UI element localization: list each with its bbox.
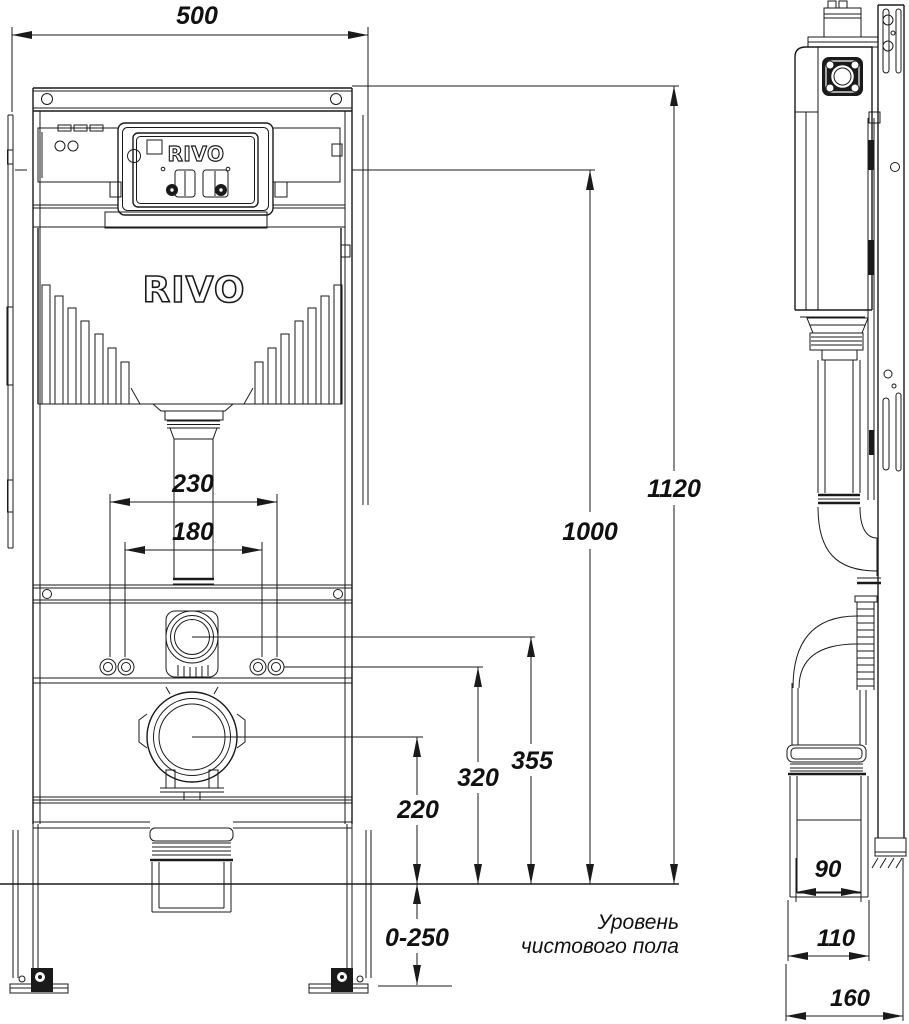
side-view: [787, 1, 906, 897]
flush-outlet-housing: [166, 611, 218, 677]
side-waste-outlet: [787, 616, 868, 897]
bottom-rail: [33, 797, 352, 803]
floor-level-label: Уровень чистового пола: [521, 911, 679, 958]
fixing-studs: [100, 659, 284, 675]
dim-studs-height-label: 320: [457, 764, 499, 792]
drain-connector: [150, 828, 233, 912]
side-wall-rail: [872, 5, 906, 868]
side-tank: [795, 47, 880, 500]
dim-studs-outer-label: 230: [171, 470, 214, 498]
frame-top-rail: [33, 88, 352, 111]
dim-outlet-90-label: 90: [815, 856, 842, 883]
dim-leg-adjustment: 0-250: [378, 884, 452, 986]
dim-width-500: 500: [12, 2, 368, 112]
dim-width-label: 500: [176, 2, 218, 30]
dim-outlet-90: 90: [796, 856, 861, 902]
waste-outlet-socket: [139, 687, 245, 800]
dim-panel-height-label: 1000: [562, 518, 618, 546]
dim-panel-height-1000: 1000: [562, 170, 618, 884]
dim-flush-height-label: 355: [511, 747, 554, 775]
dim-waste-height-220: 220: [396, 737, 439, 884]
mid-rail: [33, 585, 352, 603]
floor-label-line2: чистового пола: [521, 935, 679, 958]
dim-leg-adjustment-label: 0-250: [385, 924, 449, 952]
dim-depth-160-label: 160: [830, 985, 871, 1012]
dim-studs-height-320: 320: [457, 667, 499, 884]
dim-studs-outer-230: 230: [110, 470, 277, 657]
frame-side-rails: [33, 111, 352, 824]
dim-pipe-110: 110: [788, 900, 869, 961]
cistern-tank: RIVO: [38, 228, 342, 404]
panel-hole: [147, 140, 162, 154]
dim-waste-height-label: 220: [396, 796, 439, 824]
dimensions: 500 230 180 220: [12, 2, 903, 1021]
frame-bottom-edge: [33, 822, 352, 828]
leader-lines: [192, 637, 535, 737]
brand-logo-tank: RIVO: [143, 270, 246, 311]
dim-studs-inner-label: 180: [172, 518, 214, 546]
technical-drawing: RIVO RIVO: [0, 0, 909, 1024]
lower-rail: [33, 678, 352, 683]
access-panel: RIVO: [33, 123, 350, 257]
dim-pipe-110-label: 110: [817, 925, 856, 952]
side-flush-pipe: [807, 318, 881, 690]
floor-label-line1: Уровень: [597, 911, 679, 934]
right-wall-bracket: [363, 86, 368, 505]
dim-total-height-1120: 1120: [647, 86, 701, 884]
dim-total-height-label: 1120: [647, 475, 701, 503]
level-bars-right: [244, 285, 342, 404]
left-wall-bracket: [7, 115, 13, 548]
level-bars-left: [42, 285, 140, 404]
dim-flush-height-355: 355: [511, 637, 554, 884]
brand-logo-panel: RIVO: [168, 142, 225, 166]
